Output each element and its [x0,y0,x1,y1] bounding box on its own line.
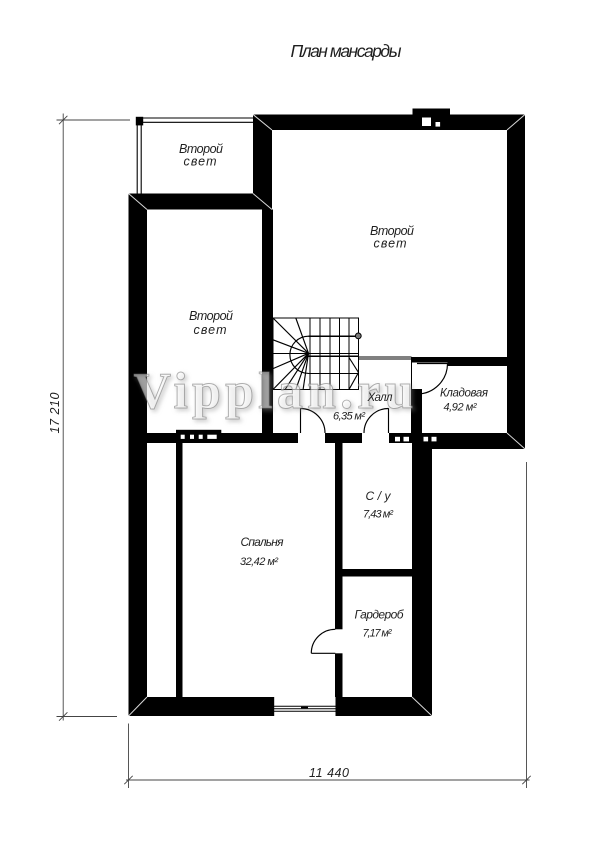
svg-text:свет: свет [184,155,217,169]
svg-text:План мансарды: План мансарды [291,41,402,61]
svg-text:32,42 м²: 32,42 м² [240,556,278,568]
svg-text:Спальня: Спальня [241,535,285,549]
svg-text:7,43 м²: 7,43 м² [363,509,393,521]
svg-text:4,92 м²: 4,92 м² [444,402,477,414]
svg-text:Кладовая: Кладовая [440,388,488,400]
svg-text:6,35 м²: 6,35 м² [333,411,365,423]
svg-text:17 210: 17 210 [48,392,62,433]
svg-text:Гардероб: Гардероб [355,608,405,622]
svg-text:Халл: Халл [367,392,394,404]
svg-text:свет: свет [194,323,227,337]
svg-text:11 440: 11 440 [309,766,349,780]
svg-text:С/у: С/у [366,489,392,503]
svg-text:7,17 м²: 7,17 м² [363,628,392,640]
svg-text:Второй: Второй [189,309,233,323]
svg-text:свет: свет [374,237,407,251]
